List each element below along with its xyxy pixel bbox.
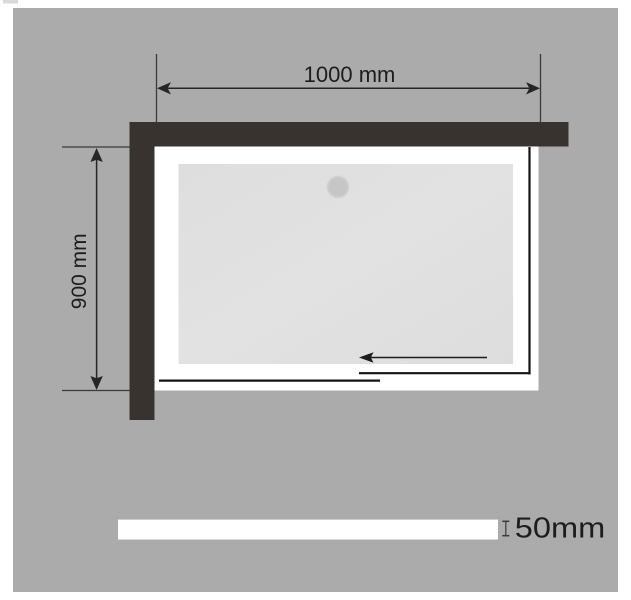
svg-text:900 mm: 900 mm — [68, 233, 91, 309]
svg-text:1000 mm: 1000 mm — [304, 62, 396, 87]
svg-text:50mm: 50mm — [515, 511, 605, 544]
